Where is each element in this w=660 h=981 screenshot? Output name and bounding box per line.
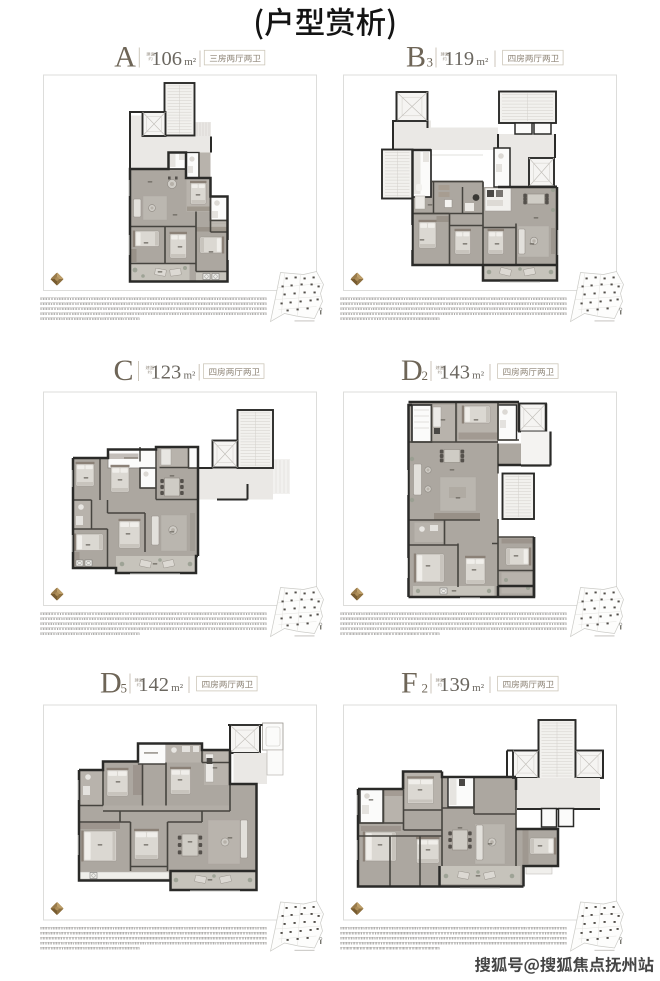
svg-text:B: B <box>406 41 426 74</box>
svg-text:nnnnnnnnn nnnnnnnn nnnnnnn nnn: nnnnnnnnn nnnnnnnn nnnnnnn nnnnnnnn nnnn… <box>340 316 441 321</box>
svg-text:2: 2 <box>422 681 429 696</box>
svg-text:142 m²: 142 m² <box>138 674 184 696</box>
svg-text:C: C <box>114 354 134 387</box>
svg-text:2: 2 <box>422 368 429 383</box>
svg-text:nnnnnnnnnnnnnn nnnnnnnnnnnnnn: nnnnnnnnnnnnnn nnnnnnnnnnnnnn nnnnnnnnnn… <box>40 946 141 951</box>
svg-text:nnnnnnnnnnnnnn nnnnnnnnnnnnn n: nnnnnnnnnnnnnn nnnnnnnnnnnnn nnnnnnnnnnn… <box>40 316 141 321</box>
svg-text:nnnnnnnnnnnn nnnnnnnnnnn nnnnn: nnnnnnnnnnnn nnnnnnnnnnn nnnnnnn nnnnnnn… <box>340 631 441 636</box>
svg-text:5: 5 <box>121 681 128 696</box>
svg-text:143 m²: 143 m² <box>439 361 485 383</box>
svg-text:3: 3 <box>427 55 434 70</box>
svg-text:F: F <box>401 667 418 700</box>
svg-text:106 m²: 106 m² <box>151 48 197 70</box>
svg-text:139 m²: 139 m² <box>439 674 485 696</box>
svg-text:nnnnnnnnnnnnnn nnnnnnnnnnnn nn: nnnnnnnnnnnnnn nnnnnnnnnnnn nnnnnnnnnnn … <box>340 946 441 951</box>
svg-text:A: A <box>114 41 136 74</box>
svg-text:nnnnnnnnnn nnnnnnnnnnnnn nnnnn: nnnnnnnnnn nnnnnnnnnnnnn nnnnnnnn nnnnnn… <box>40 631 141 636</box>
svg-text:119 m²: 119 m² <box>444 48 489 70</box>
svg-text:D: D <box>401 354 423 387</box>
svg-text:123 m²: 123 m² <box>151 361 197 383</box>
svg-text:D: D <box>100 667 122 700</box>
